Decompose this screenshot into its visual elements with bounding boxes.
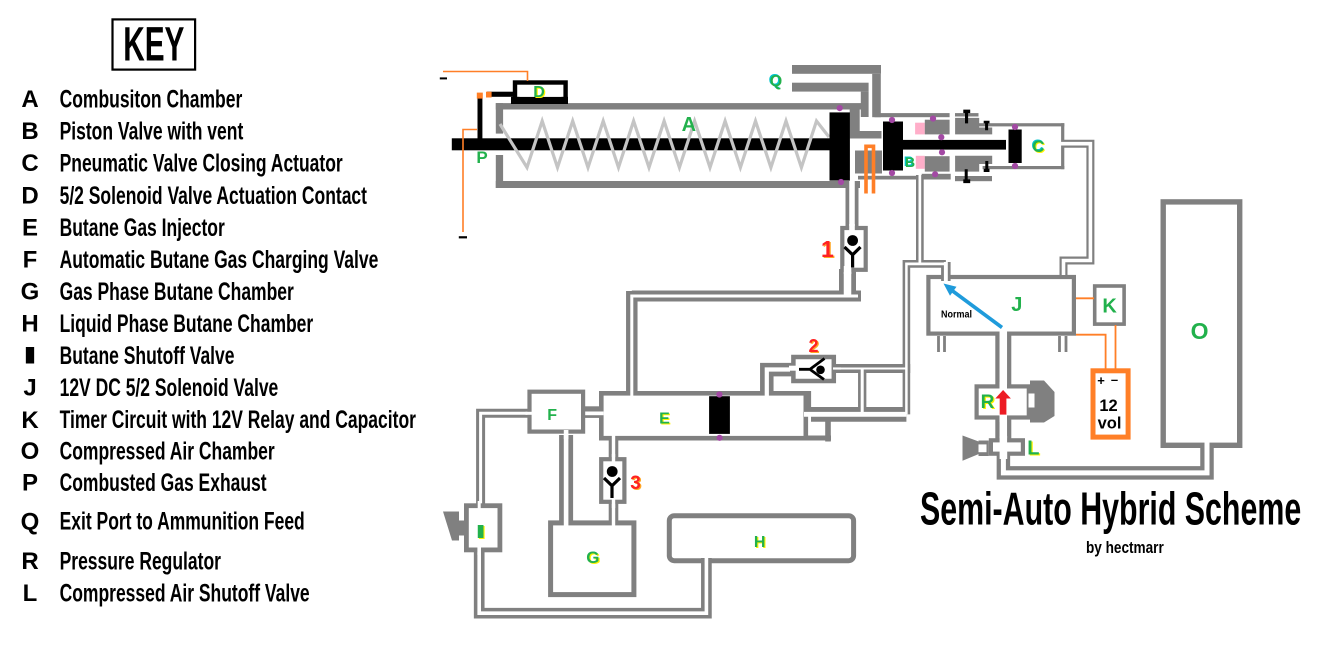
svg-text:Exit Port to Ammunition Feed: Exit Port to Ammunition Feed — [60, 507, 305, 536]
svg-text:L: L — [1027, 438, 1039, 460]
svg-text:Q: Q — [21, 508, 40, 535]
svg-text:F: F — [547, 407, 557, 424]
svg-text:Compressed Air Shutoff Valve: Compressed Air Shutoff Valve — [60, 578, 310, 607]
svg-text:3: 3 — [630, 473, 641, 494]
svg-text:G: G — [586, 548, 599, 567]
svg-text:O: O — [21, 438, 40, 465]
svg-text:I: I — [22, 342, 38, 369]
svg-text:J: J — [1011, 294, 1022, 316]
svg-text:F: F — [23, 246, 38, 273]
svg-text:E: E — [659, 411, 670, 428]
svg-text:C: C — [1032, 137, 1044, 156]
svg-text:Pneumatic Valve Closing Actuat: Pneumatic Valve Closing Actuator — [60, 148, 344, 177]
svg-text:K: K — [1102, 296, 1117, 318]
svg-text:Combusted Gas Exhaust: Combusted Gas Exhaust — [60, 468, 267, 497]
svg-text:Gas Phase Butane Chamber: Gas Phase Butane Chamber — [60, 277, 295, 306]
svg-text:E: E — [22, 214, 38, 241]
svg-text:2: 2 — [808, 336, 818, 356]
svg-text:Butane Shutoff Valve: Butane Shutoff Valve — [60, 341, 235, 370]
svg-text:H: H — [754, 534, 766, 551]
svg-text:12: 12 — [1099, 397, 1117, 415]
svg-text:12V DC 5/2 Solenoid Valve: 12V DC 5/2 Solenoid Valve — [60, 373, 279, 402]
svg-text:A: A — [21, 86, 38, 113]
svg-text:C: C — [21, 150, 38, 177]
svg-text:Automatic Butane Gas Charging: Automatic Butane Gas Charging Valve — [60, 245, 379, 274]
svg-text:J: J — [23, 375, 36, 402]
svg-text:1: 1 — [821, 236, 834, 262]
svg-text:R: R — [21, 548, 38, 575]
svg-text:by hectmarr: by hectmarr — [1086, 539, 1164, 558]
svg-text:D: D — [533, 84, 545, 101]
svg-text:D: D — [21, 183, 38, 210]
svg-text:Butane Gas Injector: Butane Gas Injector — [60, 213, 226, 242]
svg-text:B: B — [905, 154, 915, 170]
svg-text:B: B — [21, 118, 38, 145]
svg-text:+: + — [1097, 373, 1105, 388]
svg-text:Semi-Auto Hybrid Scheme: Semi-Auto Hybrid Scheme — [920, 484, 1301, 535]
svg-text:Q: Q — [770, 73, 782, 90]
svg-text:vol: vol — [1098, 415, 1122, 433]
svg-text:L: L — [23, 580, 38, 607]
svg-text:K: K — [21, 407, 39, 434]
svg-text:P: P — [22, 470, 38, 497]
svg-text:Combusiton Chamber: Combusiton Chamber — [60, 84, 243, 113]
svg-text:I: I — [475, 522, 486, 542]
svg-text:KEY: KEY — [123, 18, 184, 71]
svg-text:5/2 Solenoid Valve Actuation C: 5/2 Solenoid Valve Actuation Contact — [60, 181, 367, 210]
svg-text:Pressure Regulator: Pressure Regulator — [60, 546, 222, 575]
svg-text:P: P — [476, 148, 487, 167]
svg-text:G: G — [21, 278, 40, 305]
svg-text:R: R — [981, 392, 995, 413]
svg-text:A: A — [682, 114, 696, 136]
svg-text:Liquid Phase Butane Chamber: Liquid Phase Butane Chamber — [60, 309, 314, 338]
svg-text:O: O — [1191, 318, 1209, 344]
svg-text:Piston Valve with vent: Piston Valve with vent — [60, 116, 244, 145]
svg-text:Timer Circuit with 12V Relay a: Timer Circuit with 12V Relay and Capacit… — [60, 405, 417, 434]
svg-text:Compressed Air Chamber: Compressed Air Chamber — [60, 436, 276, 465]
svg-text:H: H — [21, 310, 38, 337]
svg-text:–: – — [1111, 372, 1118, 387]
svg-text:Normal: Normal — [941, 309, 972, 321]
